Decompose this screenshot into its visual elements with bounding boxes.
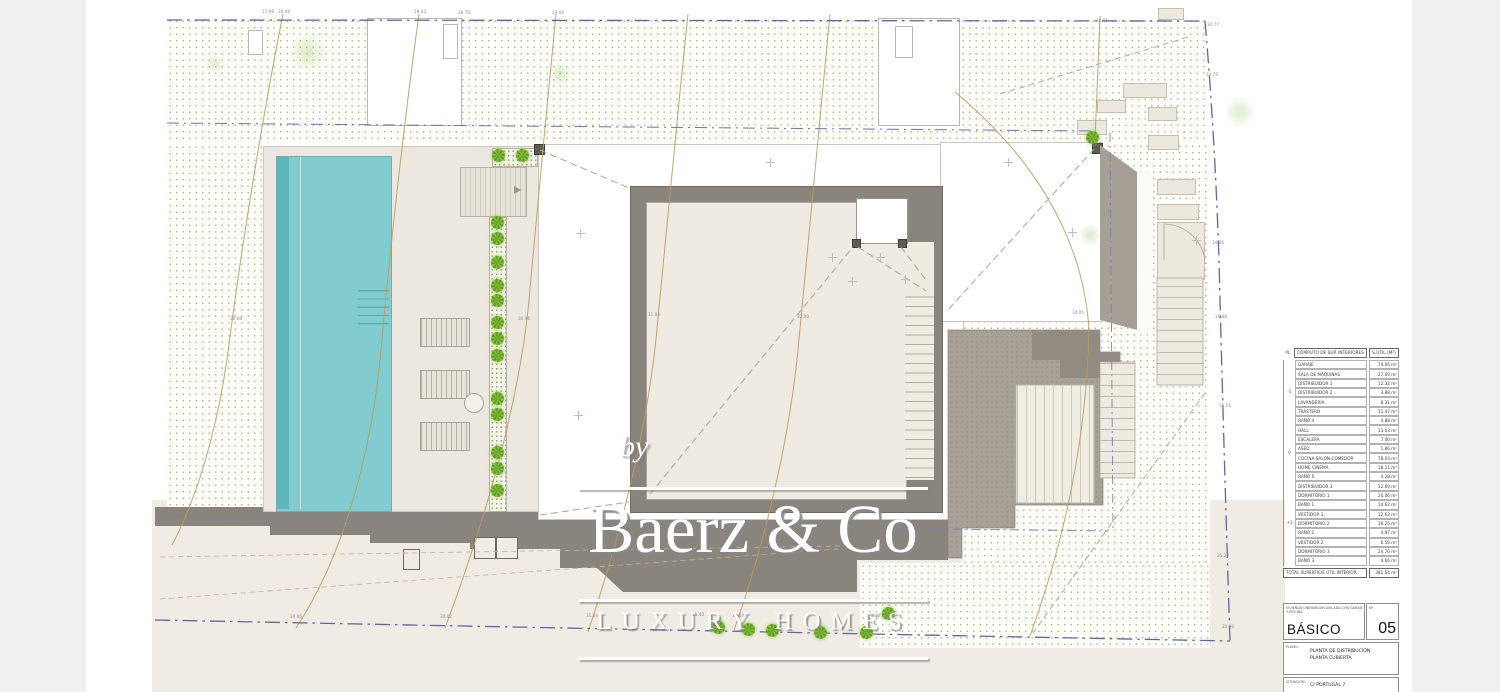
- stair-tread-number: 5: [935, 431, 937, 434]
- area-table-header-value: S.ÚTIL (M²): [1369, 348, 1399, 358]
- room-name: DORMITORIO 3: [1295, 547, 1367, 556]
- table-row: LAVANDERÍA8.31 m²: [1295, 397, 1399, 406]
- room-area: 13.03 m²: [1369, 425, 1399, 434]
- room-name: DORMITORIO 2: [1295, 519, 1367, 528]
- table-row: ESCALERA7.00 m²: [1295, 435, 1399, 444]
- room-area: 3.88 m²: [1369, 388, 1399, 397]
- stair-tread-number: 17: [935, 317, 939, 320]
- situacion-label: SITUACIÓN:: [1286, 680, 1306, 684]
- room-name: DISTRIBUIDOR 1: [1295, 379, 1367, 388]
- room-name: BAÑO 1: [1295, 500, 1367, 509]
- room-name: VESTIDOR 2: [1295, 538, 1367, 547]
- room-area: 78.03 m²: [1369, 453, 1399, 462]
- screenshot-canvas: 27.9828.0828.0328.7629.0834.0534.7734.79…: [0, 0, 1500, 692]
- stair-tread-number: 20: [935, 289, 939, 292]
- floor-level-label: 0: [1283, 425, 1295, 481]
- room-area: 14.62 m²: [1369, 500, 1399, 509]
- elevation-label: 34.05: [1096, 18, 1108, 23]
- area-table-header-pl: PL.: [1283, 348, 1294, 358]
- title-block-number-cell: Nº 05: [1366, 603, 1399, 640]
- room-area: 4.97 m²: [1369, 528, 1399, 537]
- room-name: DORMITORIO 1: [1295, 491, 1367, 500]
- room-name: BAÑO 5: [1295, 472, 1367, 481]
- stair-tread-number: 14: [935, 346, 939, 349]
- stair-tread-number: 10: [935, 384, 939, 387]
- elevation-label: 34.05: [1072, 310, 1084, 315]
- table-row: BAÑO 44.88 m²: [1295, 416, 1399, 425]
- elevation-label: 28.76: [458, 10, 470, 15]
- title-block-situacion-cell: SITUACIÓN: C/ PORTUGAL 7: [1283, 677, 1399, 692]
- stair-tread-number: 2: [935, 459, 937, 462]
- watermark: by Baerz & Co LUXURY HOMES: [578, 430, 928, 670]
- stair-tread-number: 15: [935, 336, 939, 339]
- room-area: 4.66 m²: [1369, 556, 1399, 565]
- elevation-label: 34.86: [1212, 240, 1224, 245]
- title-block: VIVIENDA UNIFAMILIAR AISLADA CON GARAJE …: [1283, 603, 1399, 692]
- elevation-label: 26.08: [230, 316, 242, 321]
- area-table-header-name: CÓMPUTO DE SUP. INTERIORES: [1294, 348, 1367, 358]
- watermark-rule-middle: [578, 599, 928, 602]
- elevation-label: 34.88: [1215, 314, 1227, 319]
- elevation-label: 32.00: [797, 314, 809, 319]
- room-area: 24.70 m²: [1369, 547, 1399, 556]
- elevation-label: 28.08: [278, 9, 290, 14]
- area-table-total-label: TOTAL SUPERFICIE ÚTIL INTERIOR: [1283, 568, 1367, 578]
- table-row: DORMITORIO 324.70 m²: [1295, 547, 1399, 556]
- table-row: TRASTERO11.47 m²: [1295, 407, 1399, 416]
- watermark-by: by: [620, 430, 648, 464]
- room-area: 18.11 m²: [1369, 463, 1399, 472]
- stair-tread-number: 9: [935, 393, 937, 396]
- elevation-label: 30.06: [290, 614, 302, 619]
- room-name: ESCALERA: [1295, 435, 1367, 444]
- elevation-label: 34.79: [1206, 72, 1218, 77]
- room-area: 8.31 m²: [1369, 397, 1399, 406]
- room-name: HOME CINEMA: [1295, 463, 1367, 472]
- table-row: BAÑO 34.66 m²: [1295, 556, 1399, 565]
- table-row: VESTIDOR 26.50 m²: [1295, 538, 1399, 547]
- room-area: 16.25 m²: [1369, 519, 1399, 528]
- table-row: HOME CINEMA18.11 m²: [1295, 463, 1399, 472]
- table-row: SALA DE MÁQUINAS27.00 m²: [1295, 369, 1399, 378]
- table-row: BAÑO 24.97 m²: [1295, 528, 1399, 537]
- table-row: GARAJE74.05 m²: [1295, 360, 1399, 369]
- room-name: DISTRIBUIDOR 2: [1295, 388, 1367, 397]
- stair-tread-number: 7: [935, 412, 937, 415]
- elevation-label: 35.36: [1222, 624, 1234, 629]
- room-area: 4.88 m²: [1369, 416, 1399, 425]
- stair-tread-number: 13: [935, 355, 939, 358]
- elevation-label: 31.06: [648, 312, 660, 317]
- table-row: ASEO1.86 m²: [1295, 444, 1399, 453]
- sheet-number: 05: [1378, 620, 1396, 638]
- watermark-rule-bottom: [578, 657, 928, 660]
- room-area: 11.47 m²: [1369, 407, 1399, 416]
- area-table-group: 0HALL13.03 m²ESCALERA7.00 m²ASEO1.86 m²C…: [1283, 425, 1399, 481]
- elevation-label: 30.96: [518, 316, 530, 321]
- title-block-project-cell: VIVIENDA UNIFAMILIAR AISLADA CON GARAJE …: [1283, 603, 1365, 640]
- room-name: DISTRIBUIDOR 3: [1295, 481, 1367, 490]
- table-row: DISTRIBUIDOR 23.88 m²: [1295, 388, 1399, 397]
- elevation-label: 34.77: [1207, 22, 1219, 27]
- stair-tread-number: 8: [935, 402, 937, 405]
- stair-tread-number: 3: [935, 450, 937, 453]
- stair-tread-number: 12: [935, 365, 939, 368]
- room-name: TRASTERO: [1295, 407, 1367, 416]
- watermark-brand: Baerz & Co: [566, 482, 940, 577]
- room-name: BAÑO 3: [1295, 556, 1367, 565]
- table-row: BAÑO 114.62 m²: [1295, 500, 1399, 509]
- floor-level-label: +1: [1283, 481, 1295, 565]
- project-description: VIVIENDA UNIFAMILIAR AISLADA CON GARAJE …: [1286, 606, 1364, 614]
- elevation-label: 35.20: [1217, 553, 1229, 558]
- area-table-header: PL. CÓMPUTO DE SUP. INTERIORES S.ÚTIL (M…: [1283, 348, 1399, 358]
- area-table-group: +1DISTRIBUIDOR 312.69 m²DORMITORIO 120.0…: [1283, 481, 1399, 565]
- room-area: 74.05 m²: [1369, 360, 1399, 369]
- sheet-number-label: Nº: [1369, 606, 1373, 610]
- room-area: 12.69 m²: [1369, 481, 1399, 490]
- room-name: ASEO: [1295, 444, 1367, 453]
- room-name: HALL: [1295, 425, 1367, 434]
- area-table-group: -1GARAJE74.05 m²SALA DE MÁQUINAS27.00 m²…: [1283, 360, 1399, 425]
- table-row: HALL13.03 m²: [1295, 425, 1399, 434]
- elevation-label: 30.02: [440, 614, 452, 619]
- room-name: GARAJE: [1295, 360, 1367, 369]
- room-area: 6.50 m²: [1369, 538, 1399, 547]
- plano-text: PLANTA DE DISTRIBUCIÓN PLANTA CUBIERTA: [1310, 649, 1370, 662]
- stair-tread-number: 18: [935, 308, 939, 311]
- room-name: VESTIDOR 1: [1295, 510, 1367, 519]
- table-row: COCINA-SALÓN-COMEDOR78.03 m²: [1295, 453, 1399, 462]
- room-name: BAÑO 2: [1295, 528, 1367, 537]
- room-name: LAVANDERÍA: [1295, 397, 1367, 406]
- room-name: BAÑO 4: [1295, 416, 1367, 425]
- table-row: DISTRIBUIDOR 312.69 m²: [1295, 481, 1399, 490]
- table-row: VESTIDOR 112.63 m²: [1295, 510, 1399, 519]
- table-row: BAÑO 54.28 m²: [1295, 472, 1399, 481]
- elevation-label: 29.08: [552, 10, 564, 15]
- room-area: 27.00 m²: [1369, 369, 1399, 378]
- room-area: 20.06 m²: [1369, 491, 1399, 500]
- area-table: PL. CÓMPUTO DE SUP. INTERIORES S.ÚTIL (M…: [1283, 348, 1399, 578]
- table-row: DORMITORIO 216.25 m²: [1295, 519, 1399, 528]
- stair-tread-number: 11: [935, 374, 939, 377]
- watermark-tagline: LUXURY HOMES: [580, 608, 928, 636]
- room-name: COCINA-SALÓN-COMEDOR: [1295, 453, 1367, 462]
- room-name: SALA DE MÁQUINAS: [1295, 369, 1367, 378]
- title-block-plano-cell: PLANO: PLANTA DE DISTRIBUCIÓN PLANTA CUB…: [1283, 642, 1399, 675]
- area-table-total-value: 381.54 m²: [1369, 568, 1399, 578]
- room-area: 4.28 m²: [1369, 472, 1399, 481]
- elevation-label: 28.03: [414, 9, 426, 14]
- room-area: 1.86 m²: [1369, 444, 1399, 453]
- stair-tread-number: 1: [935, 469, 937, 472]
- table-row: DORMITORIO 120.06 m²: [1295, 491, 1399, 500]
- phase-label: BÁSICO: [1287, 622, 1341, 637]
- area-table-total-row: TOTAL SUPERFICIE ÚTIL INTERIOR 381.54 m²: [1283, 568, 1399, 578]
- stair-tread-number: 16: [935, 327, 939, 330]
- elevation-label: 27.98: [262, 9, 274, 14]
- floor-level-label: -1: [1283, 360, 1295, 425]
- room-area: 12.63 m²: [1369, 510, 1399, 519]
- stair-tread-number: 6: [935, 421, 937, 424]
- situacion-text: C/ PORTUGAL 7: [1310, 683, 1345, 690]
- room-area: 7.00 m²: [1369, 435, 1399, 444]
- room-area: 12.32 m²: [1369, 379, 1399, 388]
- elevation-label: 35.16: [1219, 403, 1231, 408]
- stair-tread-number: 19: [935, 298, 939, 301]
- table-row: DISTRIBUIDOR 112.32 m²: [1295, 379, 1399, 388]
- plano-label: PLANO:: [1286, 645, 1299, 649]
- stair-tread-number: 4: [935, 440, 937, 443]
